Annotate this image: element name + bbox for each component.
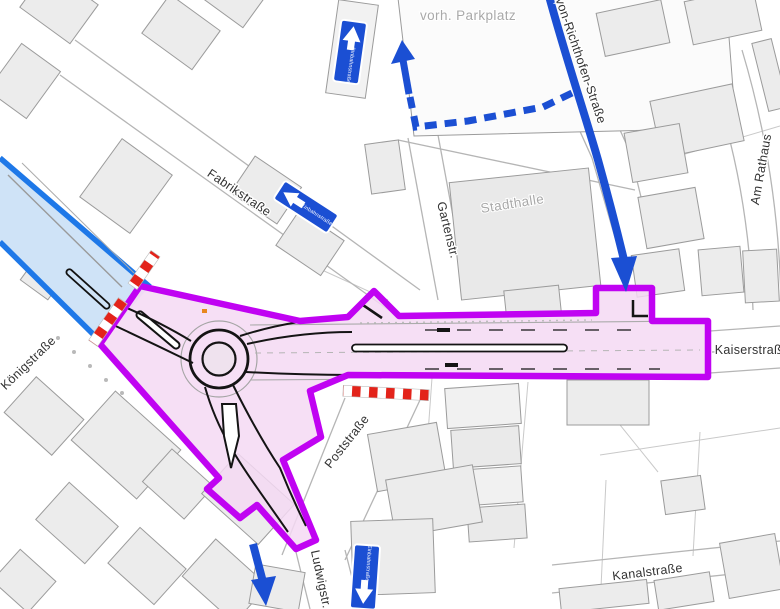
parkplatz-label: vorh. Parkplatz xyxy=(420,8,516,23)
one-way-sign-ludwigstrasse: Einbahnstraße xyxy=(350,544,380,609)
ludwigstrasse-label: Ludwigstr. xyxy=(308,549,334,609)
stadthalle-building xyxy=(449,168,601,300)
site-plan-map: Einbahnstraße Einbahnstraße Einbahnstraß… xyxy=(0,0,780,609)
poststrasse-label: Poststraße xyxy=(322,412,372,471)
am-rathaus-label: Am Rathaus xyxy=(748,133,774,206)
kaiserstrasse-label: Kaiserstraße xyxy=(715,343,780,357)
closure-barrier-poststrasse xyxy=(343,385,429,400)
map-canvas: Einbahnstraße Einbahnstraße Einbahnstraß… xyxy=(0,0,780,609)
